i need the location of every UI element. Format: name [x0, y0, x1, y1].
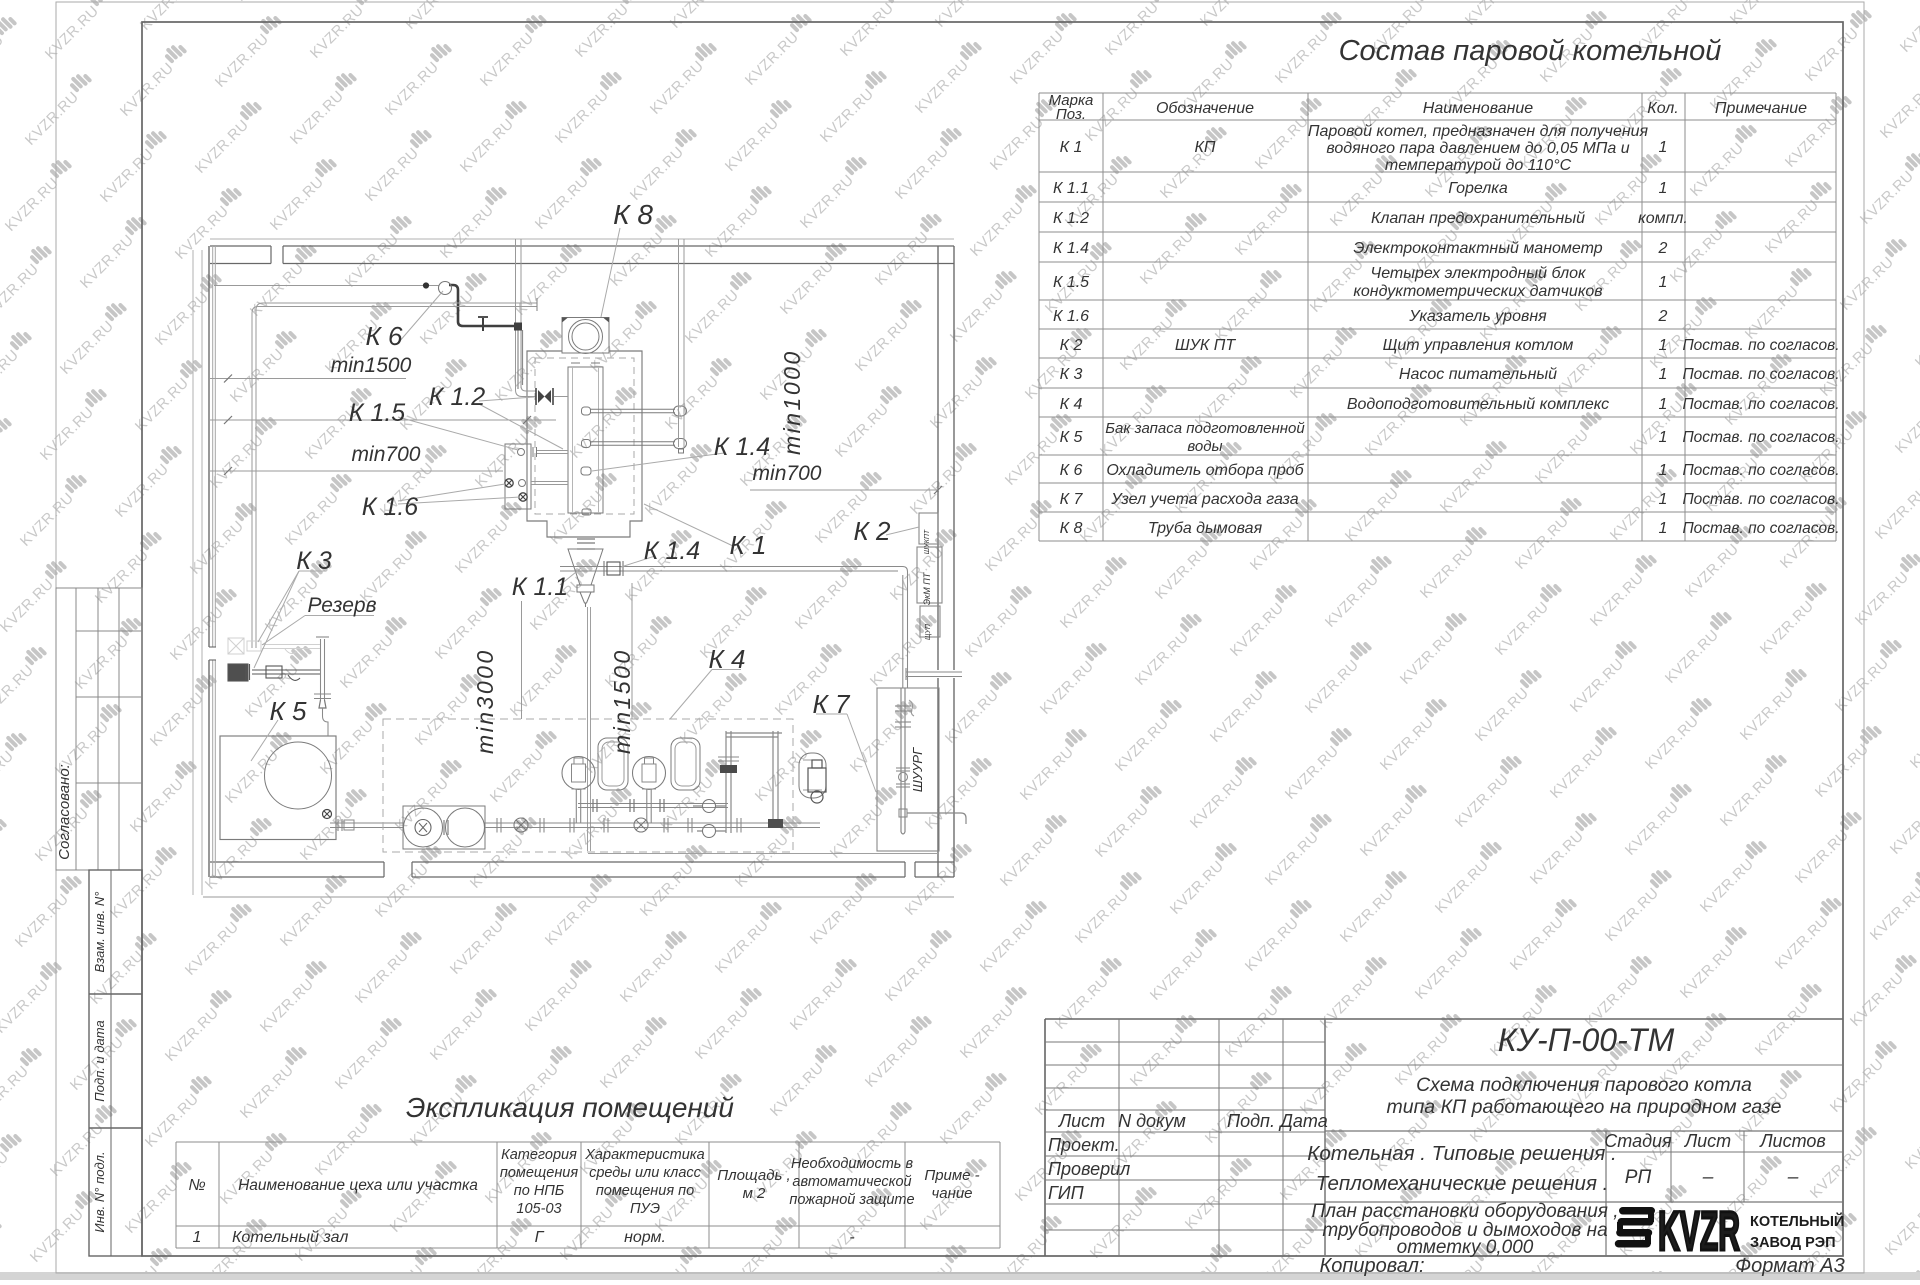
svg-text:-: -: [849, 1229, 854, 1246]
svg-text:–: –: [1787, 1167, 1799, 1188]
svg-text:1: 1: [1659, 429, 1668, 446]
svg-text:КП: КП: [1194, 139, 1215, 156]
svg-text:К 2: К 2: [1060, 337, 1083, 354]
svg-text:среды или класс: среды или класс: [589, 1165, 702, 1181]
svg-text:м 2: м 2: [743, 1185, 766, 1202]
svg-text:К 7: К 7: [812, 689, 851, 719]
svg-text:К 3: К 3: [296, 547, 332, 575]
svg-text:Поз.: Поз.: [1056, 106, 1086, 123]
svg-text:Схема подключения парового кот: Схема подключения парового котла: [1416, 1074, 1752, 1096]
svg-text:№: №: [188, 1177, 205, 1194]
svg-text:Обозначение: Обозначение: [1156, 100, 1254, 117]
svg-text:ЗАВОД РЭП: ЗАВОД РЭП: [1750, 1235, 1836, 1251]
svg-text:К 1.5: К 1.5: [1053, 274, 1089, 291]
svg-text:Четырех электродный блок: Четырех электродный блок: [1370, 265, 1587, 282]
svg-text:К 1.4: К 1.4: [644, 537, 700, 565]
svg-text:1: 1: [1659, 491, 1668, 508]
svg-text:Площадь ,: Площадь ,: [717, 1167, 790, 1184]
svg-text:1: 1: [1659, 274, 1668, 291]
svg-text:ЩУП: ЩУП: [925, 623, 932, 640]
svg-text:Водоподготовительный комплекс: Водоподготовительный комплекс: [1347, 396, 1609, 413]
svg-text:1: 1: [193, 1229, 202, 1246]
svg-text:Паровой котел, предназначен дл: Паровой котел, предназначен для получени…: [1308, 123, 1649, 140]
svg-text:Согласовано:: Согласовано:: [56, 764, 73, 860]
svg-text:РП: РП: [1625, 1167, 1652, 1188]
svg-text:Постав. по согласов.: Постав. по согласов.: [1682, 366, 1839, 383]
svg-text:ШУКПТ: ШУКПТ: [924, 529, 931, 554]
svg-text:кондуктометрических датчиков: кондуктометрических датчиков: [1353, 283, 1602, 300]
svg-text:1: 1: [1659, 139, 1668, 156]
svg-text:Кол.: Кол.: [1647, 100, 1678, 117]
svg-text:1: 1: [1659, 396, 1668, 413]
svg-text:Бак запаса подготовленной: Бак запаса подготовленной: [1105, 420, 1305, 437]
svg-text:помещения: помещения: [500, 1165, 578, 1181]
svg-text:температурой до 110°С: температурой до 110°С: [1385, 157, 1572, 174]
svg-text:KVZR: KVZR: [1658, 1199, 1740, 1262]
svg-text:Подп. и дата: Подп. и дата: [92, 1020, 107, 1101]
svg-text:Лист: Лист: [1058, 1111, 1105, 1131]
svg-text:К 8: К 8: [613, 199, 653, 230]
svg-text:1: 1: [1659, 337, 1668, 354]
svg-text:Постав. по согласов.: Постав. по согласов.: [1682, 520, 1839, 537]
svg-text:автоматической: автоматической: [792, 1174, 911, 1190]
svg-text:2: 2: [1658, 240, 1668, 257]
svg-text:Постав. по согласов.: Постав. по согласов.: [1682, 462, 1839, 479]
svg-text:К 4: К 4: [1060, 396, 1083, 413]
svg-text:Котельная . Типовые решения .: Котельная . Типовые решения .: [1307, 1142, 1616, 1165]
svg-text:К 1.2: К 1.2: [1053, 210, 1089, 227]
svg-text:Листов: Листов: [1759, 1131, 1826, 1151]
svg-text:Г: Г: [535, 1229, 545, 1246]
svg-text:К 1.6: К 1.6: [362, 493, 419, 521]
svg-text:К 7: К 7: [1060, 491, 1084, 508]
svg-text:К 1.4: К 1.4: [1053, 240, 1089, 257]
svg-text:ЭкМ ПТ: ЭкМ ПТ: [922, 571, 932, 605]
svg-text:чание: чание: [931, 1185, 972, 1202]
svg-text:Клапан предохранительный: Клапан предохранительный: [1371, 210, 1585, 227]
svg-text:Подп.: Подп.: [1227, 1111, 1275, 1131]
svg-text:Состав паровой котельной: Состав паровой котельной: [1339, 35, 1722, 67]
svg-text:Категория: Категория: [501, 1147, 577, 1163]
svg-text:Постав. по согласов.: Постав. по согласов.: [1682, 337, 1839, 354]
svg-text:типа КП работающего на природн: типа КП работающего на природном газе: [1386, 1096, 1781, 1118]
svg-text:К 1.5: К 1.5: [349, 399, 406, 427]
svg-text:по НПБ: по НПБ: [514, 1183, 565, 1199]
svg-text:К 1.1: К 1.1: [1053, 180, 1089, 197]
svg-text:1: 1: [1659, 462, 1668, 479]
svg-text:Необходимость в: Необходимость в: [791, 1156, 913, 1172]
svg-text:воды: воды: [1187, 438, 1222, 455]
svg-text:компл.: компл.: [1638, 210, 1688, 227]
svg-text:Насос питательный: Насос питательный: [1399, 366, 1557, 383]
svg-text:ШУК ПТ: ШУК ПТ: [1175, 337, 1236, 354]
svg-text:К 2: К 2: [853, 516, 891, 546]
svg-text:Электроконтактный манометр: Электроконтактный манометр: [1353, 240, 1602, 257]
svg-text:min1500: min1500: [609, 648, 635, 754]
svg-text:1: 1: [1659, 520, 1668, 537]
svg-text:min700: min700: [352, 443, 421, 466]
svg-text:пожарной защите: пожарной защите: [789, 1192, 914, 1208]
svg-text:К 4: К 4: [708, 644, 745, 674]
svg-text:Охладитель отбора проб: Охладитель отбора проб: [1106, 462, 1304, 479]
svg-text:Узел учета расхода газа: Узел учета расхода газа: [1110, 491, 1299, 508]
svg-text:–: –: [1702, 1167, 1714, 1188]
svg-text:Проверил: Проверил: [1048, 1159, 1130, 1179]
svg-text:К 8: К 8: [1060, 520, 1083, 537]
svg-text:Примечание: Примечание: [1715, 100, 1807, 117]
svg-text:КУ-П-00-ТМ: КУ-П-00-ТМ: [1498, 1022, 1675, 1058]
svg-text:К 1: К 1: [729, 530, 766, 560]
svg-text:N докум: N докум: [1118, 1111, 1186, 1131]
svg-text:К 1.4: К 1.4: [714, 433, 770, 461]
svg-text:План расстановки оборудования: План расстановки оборудования ,: [1312, 1201, 1619, 1222]
svg-text:Стадия: Стадия: [1604, 1131, 1672, 1151]
svg-text:К 1: К 1: [1060, 139, 1083, 156]
svg-text:1: 1: [1659, 180, 1668, 197]
svg-text:К 5: К 5: [1060, 429, 1083, 446]
svg-text:К 6: К 6: [365, 321, 403, 351]
svg-text:ШУУРГ: ШУУРГ: [910, 747, 925, 792]
svg-text:К 5: К 5: [269, 696, 307, 726]
svg-text:Наименование: Наименование: [1423, 100, 1534, 117]
svg-text:водяного пара давлением до 0,0: водяного пара давлением до 0,05 МПа и: [1326, 140, 1629, 157]
svg-text:Характеристика: Характеристика: [584, 1147, 704, 1163]
svg-text:1: 1: [1659, 366, 1668, 383]
svg-text:К 1.6: К 1.6: [1053, 308, 1089, 325]
svg-text:ГИП: ГИП: [1048, 1183, 1085, 1203]
svg-text:105-03: 105-03: [516, 1201, 561, 1217]
svg-text:Постав. по согласов.: Постав. по согласов.: [1682, 429, 1839, 446]
svg-text:Щит управления котлом: Щит управления котлом: [1383, 337, 1574, 354]
svg-text:К 3: К 3: [1060, 366, 1083, 383]
svg-text:Формат А3: Формат А3: [1735, 1255, 1844, 1277]
svg-text:min1000: min1000: [779, 349, 805, 455]
svg-text:Дата: Дата: [1278, 1111, 1328, 1131]
svg-text:помещения по: помещения по: [596, 1183, 694, 1199]
svg-text:Горелка: Горелка: [1448, 180, 1508, 197]
svg-text:Наименование цеха или участка: Наименование цеха или участка: [238, 1177, 478, 1194]
svg-text:Проект.: Проект.: [1048, 1135, 1120, 1155]
svg-text:min3000: min3000: [472, 648, 498, 754]
svg-text:К 6: К 6: [1060, 462, 1083, 479]
svg-text:К 1.2: К 1.2: [429, 383, 486, 411]
svg-text:Экспликация помещений: Экспликация помещений: [406, 1092, 734, 1123]
svg-text:Резерв: Резерв: [307, 594, 376, 617]
svg-text:Копировал:: Копировал:: [1319, 1255, 1424, 1277]
svg-text:Лист: Лист: [1684, 1131, 1731, 1151]
svg-text:Взам. инв. N°: Взам. инв. N°: [92, 892, 107, 973]
svg-text:КОТЕЛЬНЫЙ: КОТЕЛЬНЫЙ: [1750, 1212, 1844, 1230]
svg-text:К 1.1: К 1.1: [512, 573, 568, 601]
svg-text:min700: min700: [753, 462, 822, 485]
svg-text:Инв. N° подл.: Инв. N° подл.: [92, 1151, 107, 1232]
svg-text:норм.: норм.: [624, 1229, 666, 1246]
svg-text:ПУЭ: ПУЭ: [630, 1201, 660, 1217]
svg-text:Тепломеханические решения .: Тепломеханические решения .: [1316, 1172, 1609, 1195]
svg-text:min1500: min1500: [331, 354, 412, 377]
svg-text:Указатель уровня: Указатель уровня: [1408, 308, 1547, 325]
svg-text:Труба дымовая: Труба дымовая: [1148, 520, 1263, 537]
svg-text:Постав. по согласов.: Постав. по согласов.: [1682, 491, 1839, 508]
svg-text:Котельный зал: Котельный зал: [232, 1229, 348, 1246]
svg-text:2: 2: [1658, 308, 1668, 325]
svg-text:Постав. по согласов.: Постав. по согласов.: [1682, 396, 1839, 413]
svg-text:Приме -: Приме -: [924, 1167, 979, 1184]
